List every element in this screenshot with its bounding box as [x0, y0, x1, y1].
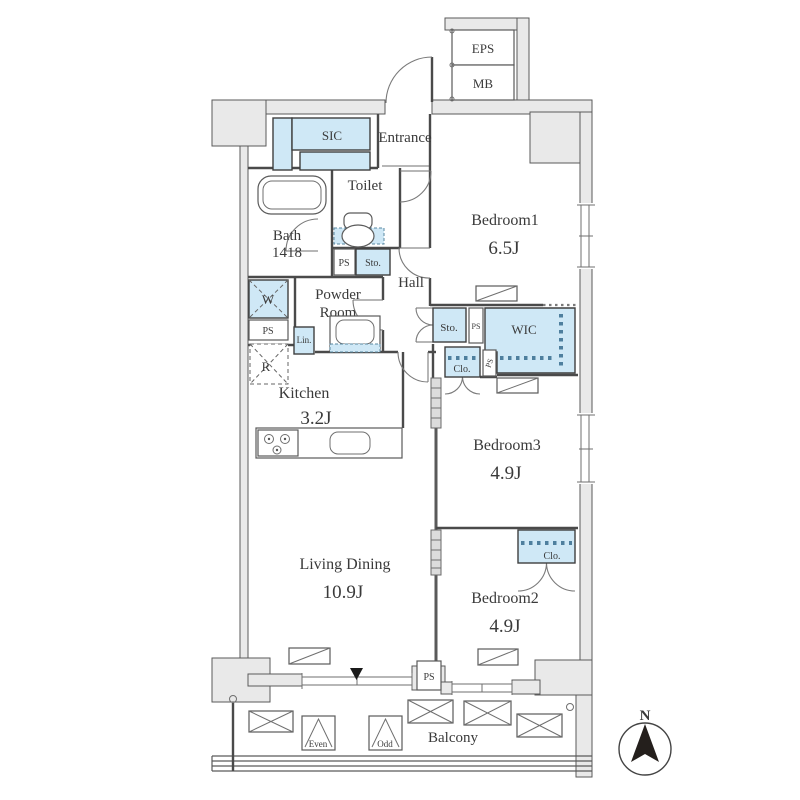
floor-plan: EPS MB	[0, 0, 800, 800]
bathroom-area: Bath 1418 Toilet PS Sto. Hall Powder Roo…	[249, 176, 424, 354]
linen-label: Lin.	[297, 335, 312, 345]
toilet-door	[400, 171, 431, 202]
closet-label: Clo.	[454, 364, 471, 375]
mb-label: MB	[473, 76, 494, 91]
washer-space: W	[249, 280, 288, 318]
ps-label: PS	[262, 326, 273, 337]
toilet-label: Toilet	[348, 178, 384, 194]
evacuation-hatch-even: Even	[302, 716, 335, 750]
bedroom1-label: Bedroom1	[471, 212, 539, 229]
evacuation-hatch-odd: Odd	[369, 716, 402, 750]
vanity	[330, 316, 380, 352]
washer-label: W	[262, 292, 275, 307]
kitchen-size-label: 3.2J	[300, 408, 331, 429]
kitchen-label: Kitchen	[279, 385, 330, 402]
bedroom3-ac-space	[497, 378, 538, 393]
sic-shelf-bottom	[300, 152, 370, 170]
hall-storage-doors	[416, 308, 433, 342]
storage-label: Sto.	[440, 322, 458, 334]
balcony-label: Balcony	[428, 730, 478, 746]
balcony-area: Even Odd Balcony	[212, 696, 592, 772]
even-label: Even	[309, 739, 328, 749]
balcony-access-marker	[350, 668, 363, 680]
odd-label: Odd	[377, 739, 393, 749]
bedroom1-window	[577, 203, 595, 269]
bedroom1-size-label: 6.5J	[488, 238, 519, 259]
kitchen-area: R Kitchen 3.2J	[250, 344, 402, 458]
bath-size-label: 1418	[272, 245, 302, 261]
ac-outdoor-unit	[408, 700, 453, 723]
hall-label: Hall	[398, 275, 424, 291]
living-size-label: 10.9J	[323, 582, 364, 603]
north-label: N	[640, 708, 651, 724]
closet-label: Clo.	[544, 551, 561, 562]
powder-room-label-1: Powder	[315, 287, 361, 303]
bedroom3-room: Bedroom3 4.9J	[473, 378, 541, 484]
bedroom1-room: Bedroom1 6.5J	[471, 212, 539, 301]
bedroom3-sliding-door	[431, 378, 441, 428]
bath-label: Bath	[273, 228, 302, 244]
floor-plan-canvas: EPS MB	[0, 0, 800, 800]
bedroom3-closet-doors	[445, 377, 480, 394]
bedroom2-ac-space	[478, 649, 518, 665]
toilet-fixture	[334, 213, 384, 247]
entrance-area: SIC Entrance	[273, 118, 432, 170]
stove	[258, 430, 298, 456]
eps-label: EPS	[472, 41, 494, 56]
bedroom3-label: Bedroom3	[473, 437, 541, 454]
kitchen-counter	[256, 428, 402, 458]
sic-shelf-left	[273, 118, 292, 170]
ac-outdoor-unit	[249, 711, 293, 732]
bedroom2-label: Bedroom2	[471, 590, 539, 607]
living-dining-room: Living Dining 10.9J PS	[289, 556, 441, 690]
bedroom3-size-label: 4.9J	[490, 463, 521, 484]
bedroom1-ac-space	[476, 286, 517, 301]
bedroom2-closet-doors	[518, 563, 575, 591]
living-label: Living Dining	[299, 556, 390, 573]
bedroom2-sliding-door	[431, 530, 441, 575]
bedroom3-window	[577, 413, 595, 484]
fridge-label: R	[262, 359, 271, 374]
wic-label: WIC	[511, 322, 536, 337]
storage-label: Sto.	[365, 258, 381, 269]
bedroom2-window	[452, 681, 512, 695]
ps-label: PS	[338, 258, 349, 269]
entrance-door	[386, 57, 432, 103]
compass: N	[619, 708, 671, 775]
ac-outdoor-unit	[464, 701, 511, 725]
eps-mb-shafts: EPS MB	[450, 29, 514, 101]
entrance-label: Entrance	[378, 130, 432, 146]
bedroom2-size-label: 4.9J	[489, 616, 520, 637]
living-sliding-window	[302, 668, 412, 689]
fridge-space: R	[250, 344, 288, 384]
ps-label: PS	[423, 672, 434, 683]
storage-row: Sto. PS WIC Clo. PS	[433, 308, 575, 377]
ps-label: PS	[472, 322, 481, 331]
ac-outdoor-unit	[517, 714, 562, 737]
living-ac-space	[289, 648, 330, 664]
sic-label: SIC	[322, 128, 342, 143]
bedroom2-room: Clo. Bedroom2 4.9J	[471, 530, 575, 665]
north-needle	[631, 724, 659, 762]
bedroom1-door	[399, 248, 430, 278]
